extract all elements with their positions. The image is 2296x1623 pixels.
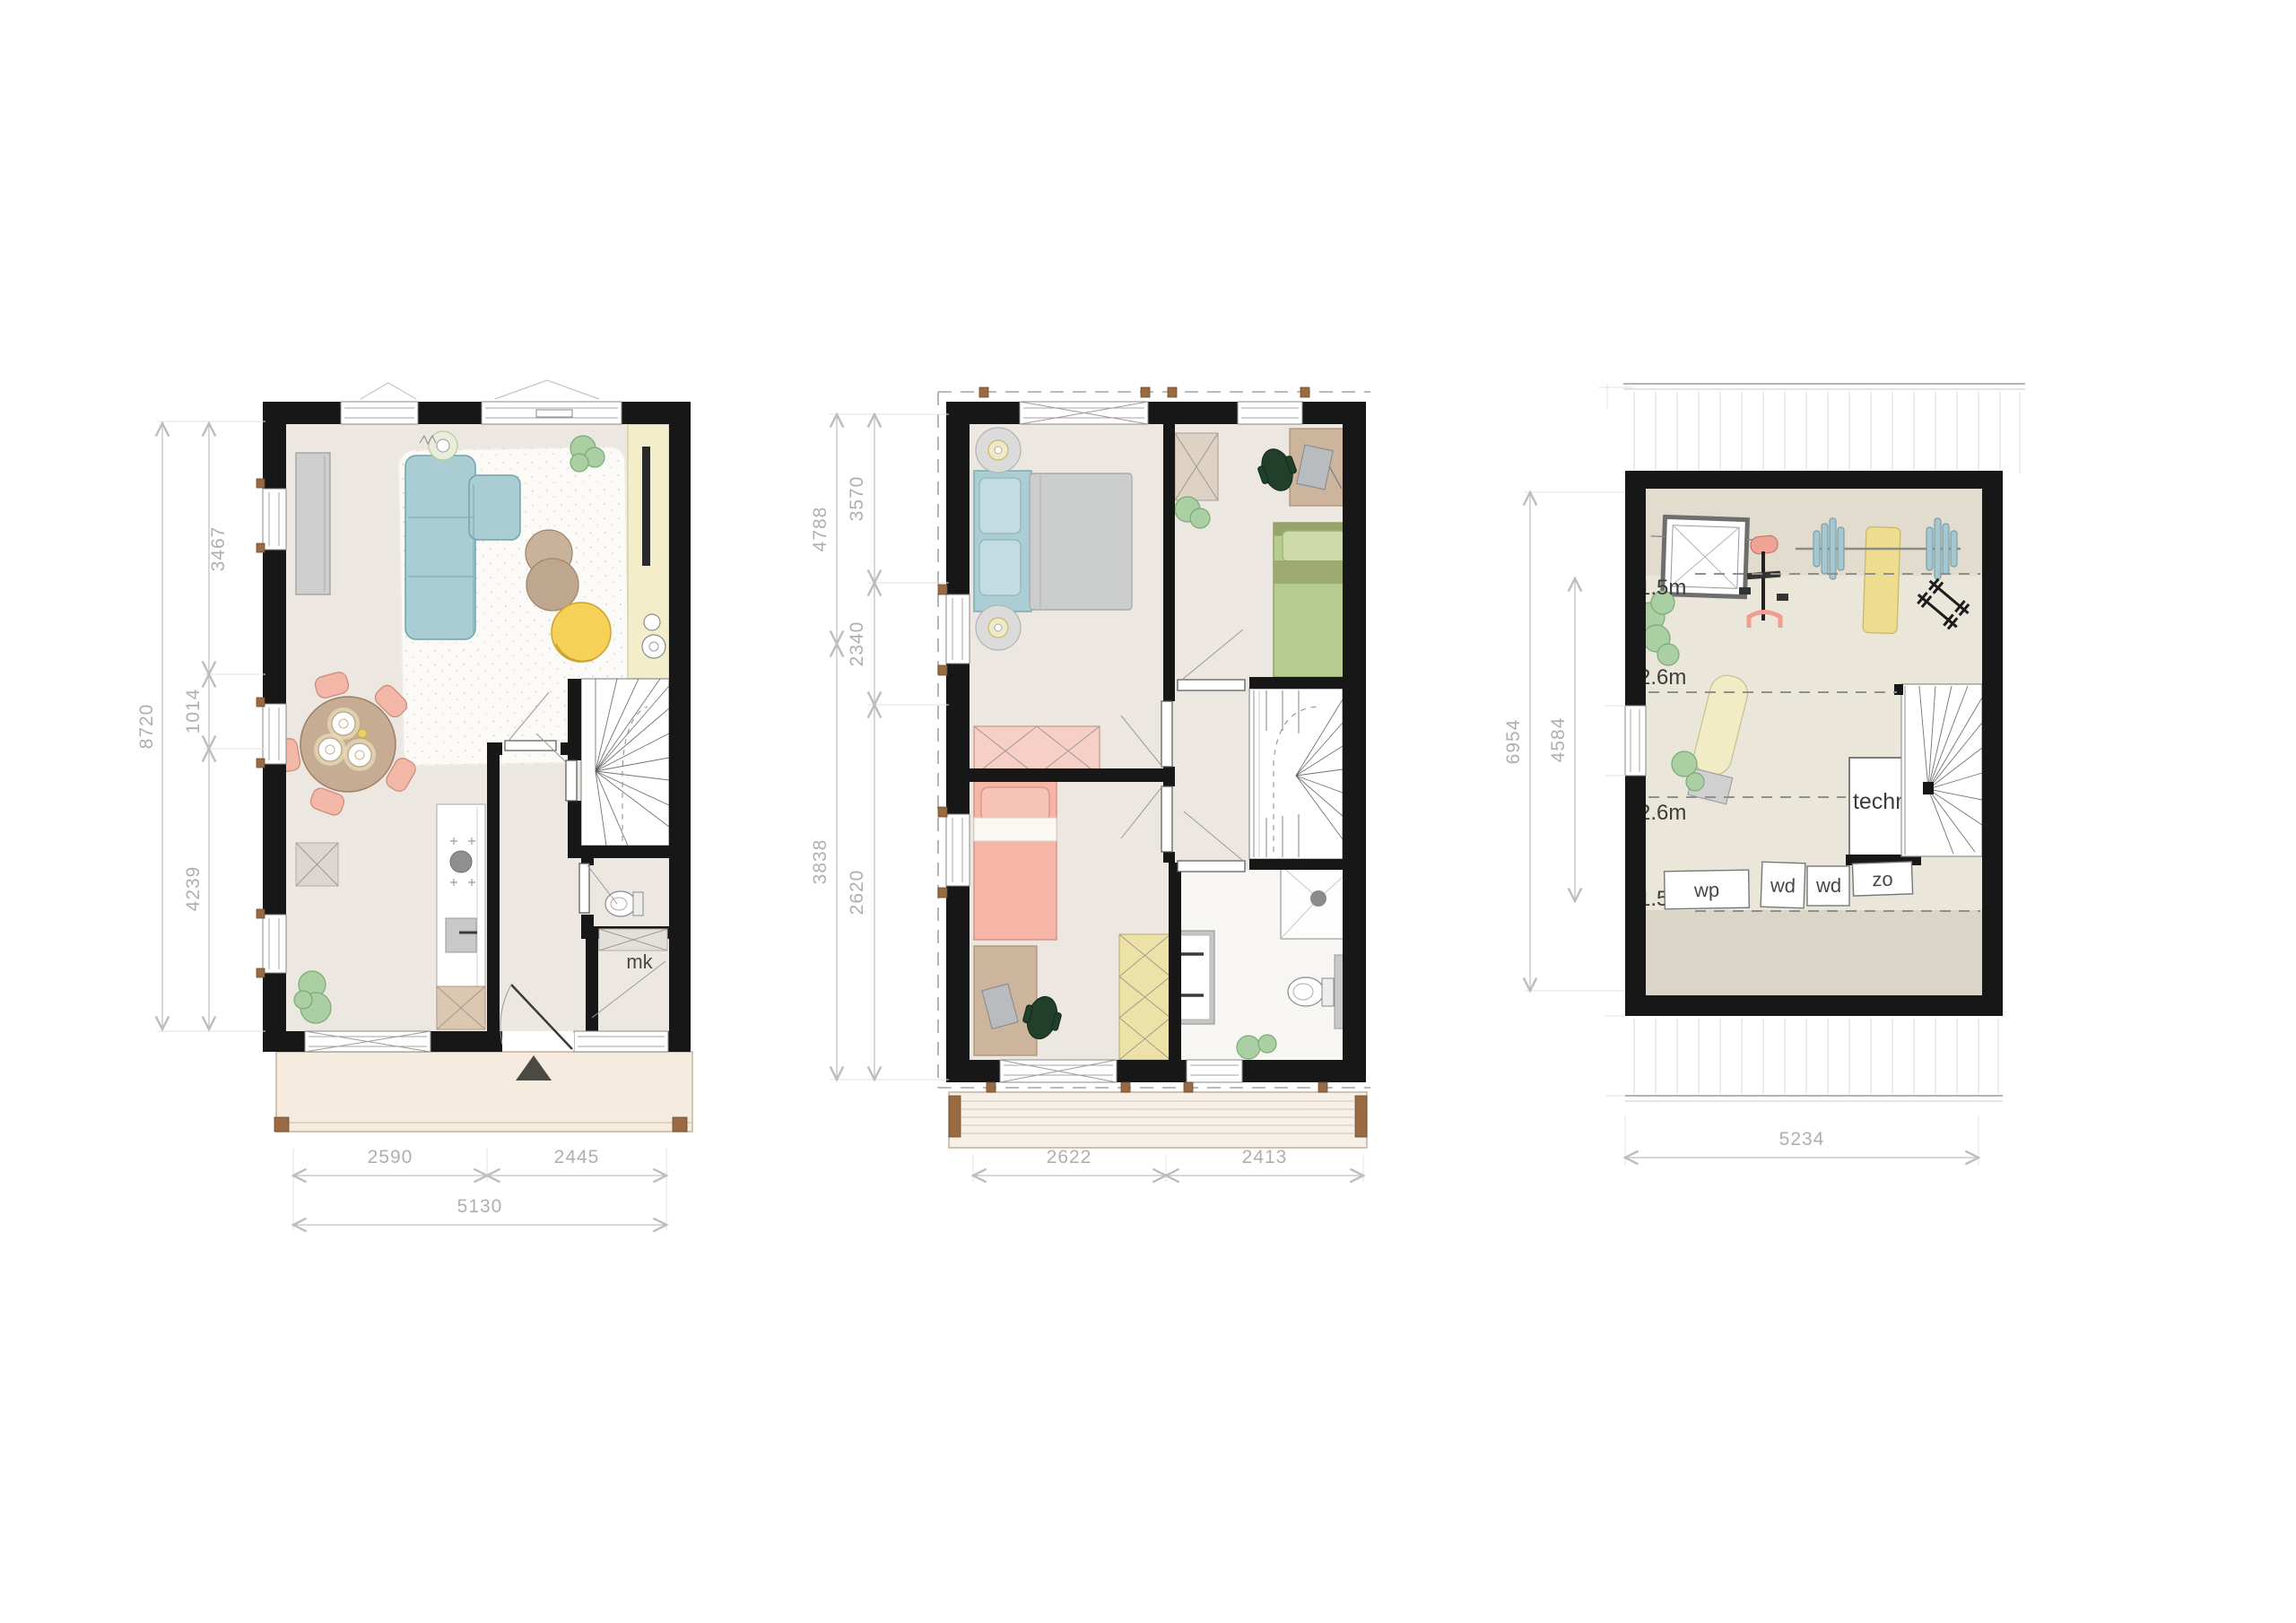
counter-edge [642,447,650,566]
dim-left-inner1: 3570 [847,476,867,522]
balcony [949,1092,1367,1148]
toilet [1288,977,1334,1006]
dim-left-total: 8720 [136,704,157,750]
double-bed [974,471,1132,612]
svg-text:zo: zo [1872,868,1893,891]
svg-text:wp: wp [1693,879,1720,902]
floorplan-sheet: mk [0,0,2296,1623]
roof-band-bottom [1605,1016,2003,1101]
room-label-mk: mk [626,950,653,973]
svg-text:wd: wd [1769,873,1796,897]
dim-left-seg2: 1014 [183,689,204,734]
dim-left-outer2: 3838 [810,839,831,885]
ground-floor-plan: mk [136,380,692,1230]
dim-left-seg3: 4239 [183,866,204,912]
windows [1605,706,1646,776]
wardrobe [974,726,1100,776]
wc-door [579,864,589,913]
dim-left-inner: 4584 [1548,717,1569,763]
tv-cabinet [296,453,330,595]
dim-left-inner3: 2620 [847,870,867,916]
porch-post [673,1117,687,1132]
porch-post [274,1117,289,1132]
washer: wd [1761,862,1805,908]
solar-inverter: zo [1852,862,1912,896]
kitchen-counter [628,424,669,679]
bedroom3-door [1161,786,1172,852]
bedroom1-door [1161,701,1172,767]
dim-left-outer1: 4788 [810,507,831,552]
attic-plan: techn. +1.5m +2.6m +2.6m +1.5m wp wd [1503,384,2025,1166]
desk [1290,429,1351,506]
single-bed-pink [974,780,1057,940]
roof-band-top [1598,384,2025,473]
staircase [1894,684,1982,856]
bedroom2-door [1178,680,1245,690]
armchair [552,603,611,662]
sink [446,918,476,952]
toilet [605,891,643,916]
floorplan-drawing: mk [0,0,2296,1623]
dim-left-outer: 6954 [1503,719,1524,765]
dim-bottom-seg2: 2445 [554,1147,600,1167]
closet [1175,433,1218,500]
dim-left-seg1: 3467 [208,526,229,572]
dryer: wd [1807,866,1849,906]
balcony-post [1355,1096,1367,1137]
cooktop [450,851,472,872]
dim-bottom-total: 5130 [457,1196,503,1217]
kitchen-island [437,804,485,1029]
dim-bottom-seg1: 2590 [368,1147,413,1167]
bedside-lamp [976,428,1021,473]
staircase [581,679,669,846]
first-floor-plan: 4788 3838 3570 2340 2620 2622 2413 [810,387,1370,1182]
wardrobe-yellow [1119,934,1170,1060]
bathroom-door [1178,861,1245,872]
porch [274,1052,692,1132]
dim-bottom-total: 5234 [1779,1129,1825,1150]
dim-bottom-seg2: 2413 [1242,1147,1288,1167]
shower-drain [1310,890,1326,907]
washbasin-area [599,929,667,950]
attic-low-zone-bottom [1646,910,1982,995]
bedside-lamp [976,605,1021,650]
entrance-opening [502,1033,574,1050]
dim-left-inner2: 2340 [847,621,867,667]
desk [974,946,1037,1055]
svg-text:wd: wd [1815,874,1841,897]
staircase [1249,689,1343,859]
dim-bottom-seg1: 2622 [1047,1147,1092,1167]
understair-door [566,760,577,801]
heat-pump: wp [1665,870,1750,909]
balcony-post [949,1096,961,1137]
hatched-cabinet [296,843,338,886]
